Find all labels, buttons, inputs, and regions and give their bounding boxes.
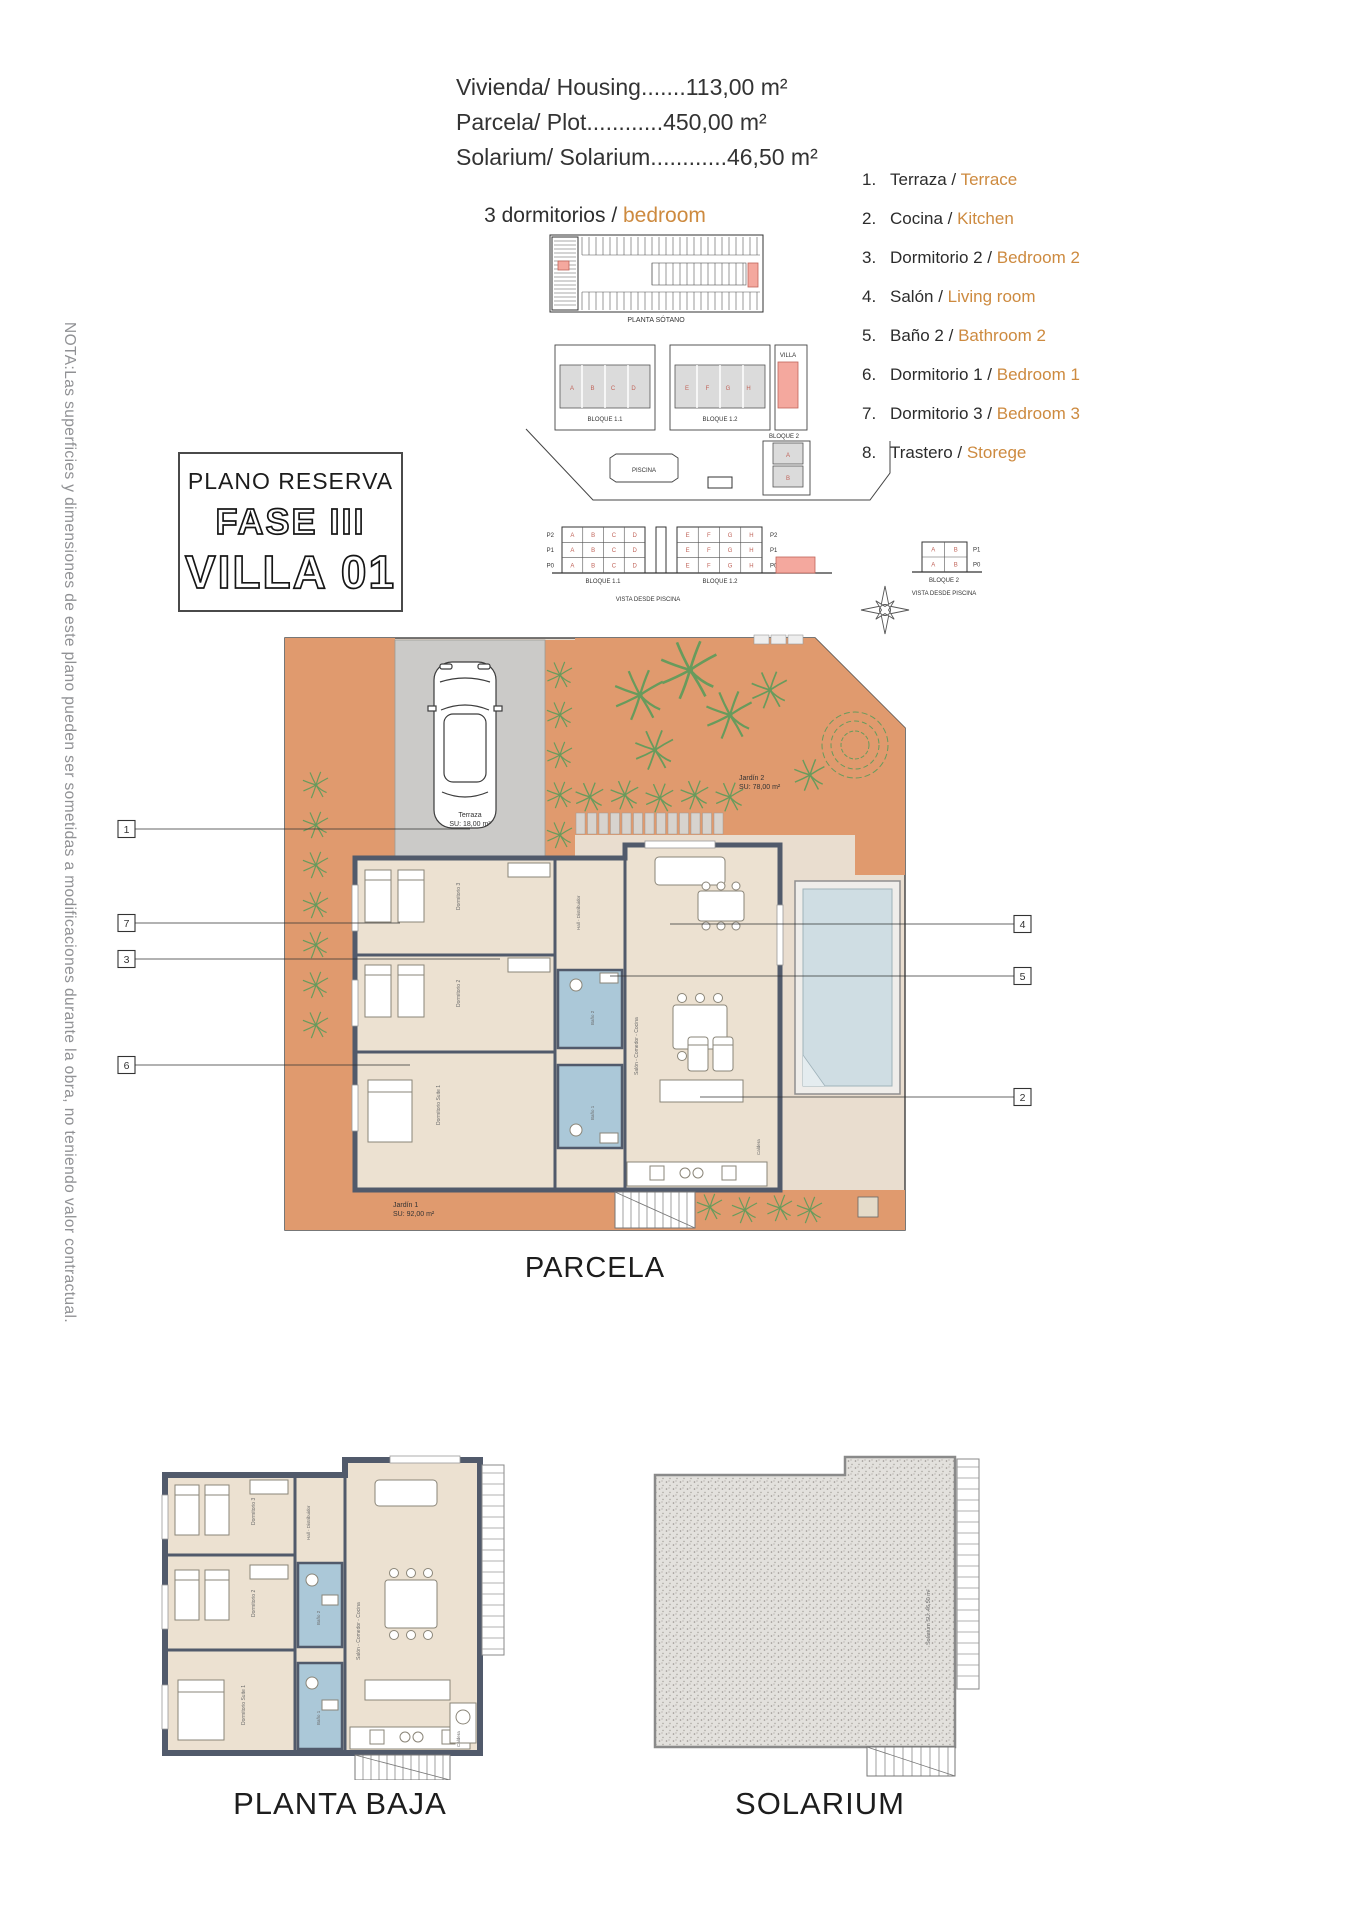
- villa-label: VILLA: [780, 353, 796, 359]
- svg-text:H: H: [749, 564, 753, 570]
- svg-text:P1: P1: [973, 548, 981, 554]
- svg-text:H: H: [746, 386, 750, 392]
- svg-text:G: G: [726, 386, 731, 392]
- site-diagrams: PLANTA SÓTANO ABCDEFGH VILLA BLOQUE 1.1 …: [420, 225, 1020, 615]
- svg-text:B: B: [954, 548, 958, 554]
- compass-rose-icon: [861, 586, 909, 634]
- svg-text:C: C: [612, 564, 617, 570]
- svg-text:F: F: [707, 564, 711, 570]
- svg-text:A: A: [570, 548, 574, 554]
- bano2-label: Baño 2: [590, 1010, 595, 1025]
- svg-text:A: A: [786, 453, 790, 459]
- svg-text:F: F: [707, 533, 711, 539]
- svg-text:P2: P2: [770, 533, 778, 539]
- legend-item: 1.Terraza / Terrace: [862, 170, 1080, 190]
- solarium-plan: Solarium SU: 46,50 m²: [630, 1445, 1010, 1780]
- svg-text:P0: P0: [973, 563, 981, 569]
- svg-text:C: C: [612, 548, 617, 554]
- planta-sotano-diagram: PLANTA SÓTANO: [550, 235, 763, 324]
- svg-text:A: A: [570, 533, 574, 539]
- dorm1-label: Dormitorio Suite 1: [436, 1085, 442, 1125]
- svg-text:B: B: [591, 533, 595, 539]
- svg-text:D: D: [632, 533, 637, 539]
- parcela-caption: PARCELA: [285, 1252, 905, 1285]
- terraza-label-2: SU: 18,00 m²: [449, 821, 491, 828]
- bloque12-map-label: BLOQUE 1.2: [702, 417, 738, 423]
- exterior-stairs: [615, 1192, 695, 1228]
- villa-elevation: [776, 557, 815, 573]
- svg-text:C: C: [611, 386, 616, 392]
- svg-text:7: 7: [124, 918, 130, 930]
- measurements-block: Vivienda/ Housing.......113,00 m² Parcel…: [456, 70, 818, 175]
- dorm2-label: Dormitorio 2: [456, 980, 462, 1007]
- bloque2-elev-label: BLOQUE 2: [929, 578, 960, 584]
- svg-text:E: E: [686, 548, 690, 554]
- svg-text:B: B: [954, 563, 958, 569]
- svg-text:3: 3: [124, 954, 130, 966]
- plan-title: PLANO RESERVA: [180, 468, 401, 495]
- svg-text:C: C: [612, 533, 617, 539]
- salon-label: Salón - Comedor - Cocina: [634, 1017, 640, 1075]
- svg-text:P2: P2: [547, 533, 555, 539]
- bedroom-count-en: bedroom: [623, 204, 706, 227]
- svg-text:A: A: [931, 563, 935, 569]
- caldera-label: Caldera: [756, 1139, 761, 1155]
- phase-title: FASE III: [180, 501, 401, 543]
- parking-stalls: [582, 237, 757, 310]
- svg-text:5: 5: [1020, 971, 1026, 983]
- sotano-caption: PLANTA SÓTANO: [627, 315, 685, 324]
- piscina-label: PISCINA: [632, 468, 656, 474]
- pool: [795, 881, 900, 1094]
- bloque2-map-label: BLOQUE 2: [769, 434, 800, 440]
- svg-text:D: D: [631, 386, 636, 392]
- solarium-stairs: [867, 1747, 955, 1776]
- pb-caldera-label: Caldera: [456, 1731, 461, 1747]
- svg-text:E: E: [686, 533, 690, 539]
- svg-text:2: 2: [1020, 1092, 1026, 1104]
- svg-text:P1: P1: [770, 548, 778, 554]
- measurement-solarium: Solarium/ Solarium............46,50 m²: [456, 140, 818, 175]
- solarium-area-label: Solarium SU: 46,50 m²: [926, 1589, 932, 1645]
- svg-text:P0: P0: [547, 564, 555, 570]
- highlight-cell: [748, 263, 758, 287]
- villa-unit: [778, 362, 798, 408]
- svg-text:B: B: [786, 476, 790, 482]
- solarium-deck: [655, 1457, 955, 1747]
- site-map: ABCDEFGH VILLA BLOQUE 1.1 BLOQUE 1.2 BLO…: [526, 345, 890, 500]
- bedroom-count-es: 3 dormitorios /: [484, 204, 623, 227]
- svg-text:A: A: [931, 548, 935, 554]
- highlight-cell: [558, 261, 569, 270]
- planta-baja-caption: PLANTA BAJA: [150, 1786, 530, 1822]
- hall-label: Hall - Distribuidor: [576, 895, 581, 930]
- svg-text:H: H: [749, 533, 753, 539]
- solarium-caption: SOLARIUM: [630, 1786, 1010, 1822]
- svg-text:F: F: [706, 386, 710, 392]
- pb-bano2-label: Baño 2: [316, 1610, 321, 1625]
- svg-text:4: 4: [1020, 919, 1026, 931]
- measurement-housing: Vivienda/ Housing.......113,00 m²: [456, 70, 818, 105]
- pb-dorm1-label: Dormitorio Suite 1: [241, 1685, 247, 1725]
- svg-text:P1: P1: [547, 548, 555, 554]
- svg-text:G: G: [728, 564, 733, 570]
- pb-bano1-label: Baño 1: [316, 1710, 321, 1725]
- svg-text:D: D: [632, 564, 637, 570]
- svg-text:B: B: [590, 386, 594, 392]
- bloque11-map-label: BLOQUE 1.1: [587, 417, 623, 423]
- svg-text:1: 1: [124, 824, 130, 836]
- jardin2-label-1: Jardín 2: [739, 775, 764, 782]
- disclaimer-note: NOTA:Las superficies y dimensiones de es…: [60, 322, 78, 1323]
- pb-dorm2-label: Dormitorio 2: [251, 1590, 257, 1617]
- bano1-label: Baño 1: [590, 1105, 595, 1120]
- svg-text:G: G: [728, 548, 733, 554]
- planta-baja-plan: Dormitorio 3 Dormitorio 2 Dormitorio Sui…: [150, 1445, 530, 1780]
- svg-text:6: 6: [124, 1060, 130, 1072]
- plan-stamp-boxes: [754, 635, 803, 644]
- jardin1-label-2: SU: 92,00 m²: [393, 1211, 435, 1218]
- pb-dorm3-label: Dormitorio 3: [251, 1498, 257, 1525]
- car-icon: [428, 662, 502, 828]
- svg-text:F: F: [707, 548, 711, 554]
- plan-reservation-sheet: { "colors": { "accent_orange": "#cd8a3f"…: [0, 0, 1356, 1920]
- svg-text:E: E: [685, 386, 689, 392]
- svg-text:A: A: [570, 564, 574, 570]
- terraza-label-1: Terraza: [458, 812, 481, 819]
- svg-text:E: E: [686, 564, 690, 570]
- dorm3-label: Dormitorio 3: [456, 883, 462, 910]
- solarium-rail: [957, 1459, 979, 1689]
- jardin1-label-1: Jardín 1: [393, 1202, 418, 1209]
- elevation-grids: ABCDABCDABCDP2P1P0EFGHEFGHEFGHP2P1P0ABAB…: [547, 527, 981, 573]
- measurement-plot: Parcela/ Plot............450,00 m²: [456, 105, 818, 140]
- pb-hall-label: Hall - Distribuidor: [306, 1505, 311, 1540]
- svg-text:H: H: [749, 548, 753, 554]
- svg-text:D: D: [632, 548, 637, 554]
- pb-salon-label: Salón - Comedor - Cocina: [356, 1602, 362, 1660]
- svg-text:B: B: [591, 548, 595, 554]
- jardin2-label-2: SU: 78,00 m²: [739, 784, 781, 791]
- parcela-plan: Dormitorio 3 Dormitorio 2 Dormitorio Sui…: [110, 585, 1035, 1270]
- garden-shed: [858, 1197, 878, 1217]
- sotano-stairs: [554, 241, 576, 305]
- pb-stairs: [355, 1755, 450, 1780]
- svg-text:A: A: [570, 386, 574, 392]
- svg-text:G: G: [728, 533, 733, 539]
- svg-text:B: B: [591, 564, 595, 570]
- pb-terrace-rail: [482, 1465, 504, 1655]
